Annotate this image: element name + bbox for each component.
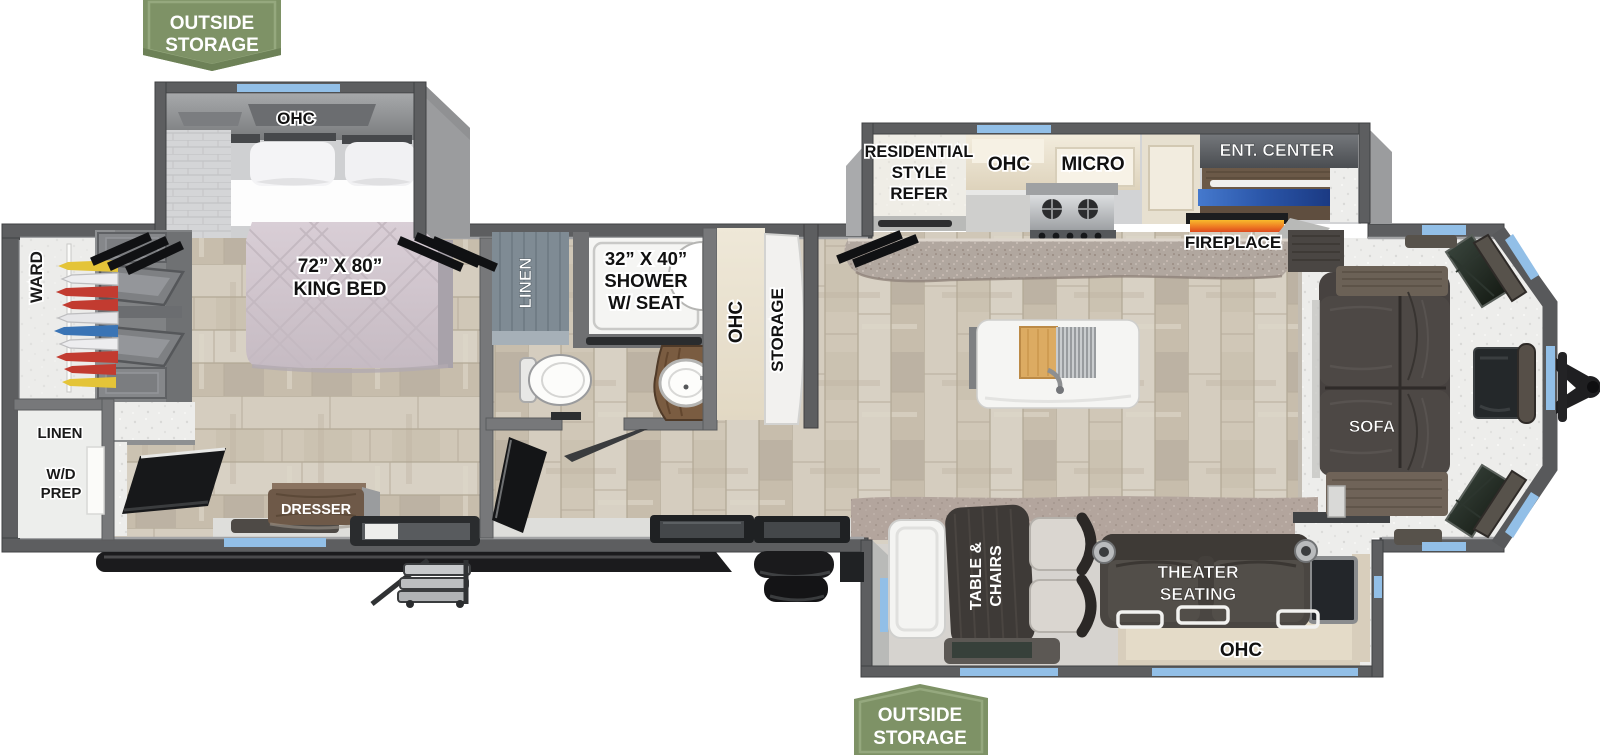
- svg-text:OHC: OHC: [277, 109, 315, 128]
- svg-text:STORAGE: STORAGE: [873, 728, 967, 749]
- svg-text:CHAIRS: CHAIRS: [988, 545, 1005, 607]
- svg-text:FIREPLACE: FIREPLACE: [1185, 233, 1281, 252]
- svg-text:LINEN: LINEN: [38, 425, 83, 442]
- svg-text:MICRO: MICRO: [1061, 154, 1124, 175]
- svg-text:LINEN: LINEN: [516, 258, 535, 309]
- svg-text:SOFA: SOFA: [1349, 417, 1395, 436]
- svg-text:STORAGE: STORAGE: [768, 288, 787, 372]
- svg-text:ENT. CENTER: ENT. CENTER: [1220, 140, 1335, 160]
- svg-text:THEATER: THEATER: [1157, 562, 1239, 582]
- svg-text:OHC: OHC: [726, 301, 747, 344]
- svg-text:OHC: OHC: [988, 154, 1031, 175]
- svg-text:W/D: W/D: [46, 466, 75, 483]
- svg-text:OUTSIDE: OUTSIDE: [878, 705, 962, 726]
- svg-text:REFER: REFER: [890, 184, 948, 203]
- svg-text:SHOWER: SHOWER: [604, 270, 687, 291]
- svg-text:OHC: OHC: [1220, 640, 1263, 661]
- svg-text:KING BED: KING BED: [294, 279, 387, 300]
- svg-text:TABLE &: TABLE &: [968, 541, 985, 610]
- svg-text:OUTSIDE: OUTSIDE: [170, 13, 254, 34]
- svg-text:WARD: WARD: [27, 251, 46, 303]
- svg-text:SEATING: SEATING: [1160, 584, 1237, 604]
- svg-text:DRESSER: DRESSER: [281, 502, 352, 518]
- svg-text:RESIDENTIAL: RESIDENTIAL: [865, 142, 974, 161]
- svg-text:72” X 80”: 72” X 80”: [298, 256, 383, 277]
- svg-text:W/ SEAT: W/ SEAT: [608, 292, 684, 313]
- svg-text:STORAGE: STORAGE: [165, 35, 259, 56]
- svg-text:STYLE: STYLE: [892, 163, 947, 182]
- svg-text:32” X 40”: 32” X 40”: [605, 248, 687, 269]
- svg-text:PREP: PREP: [41, 485, 82, 502]
